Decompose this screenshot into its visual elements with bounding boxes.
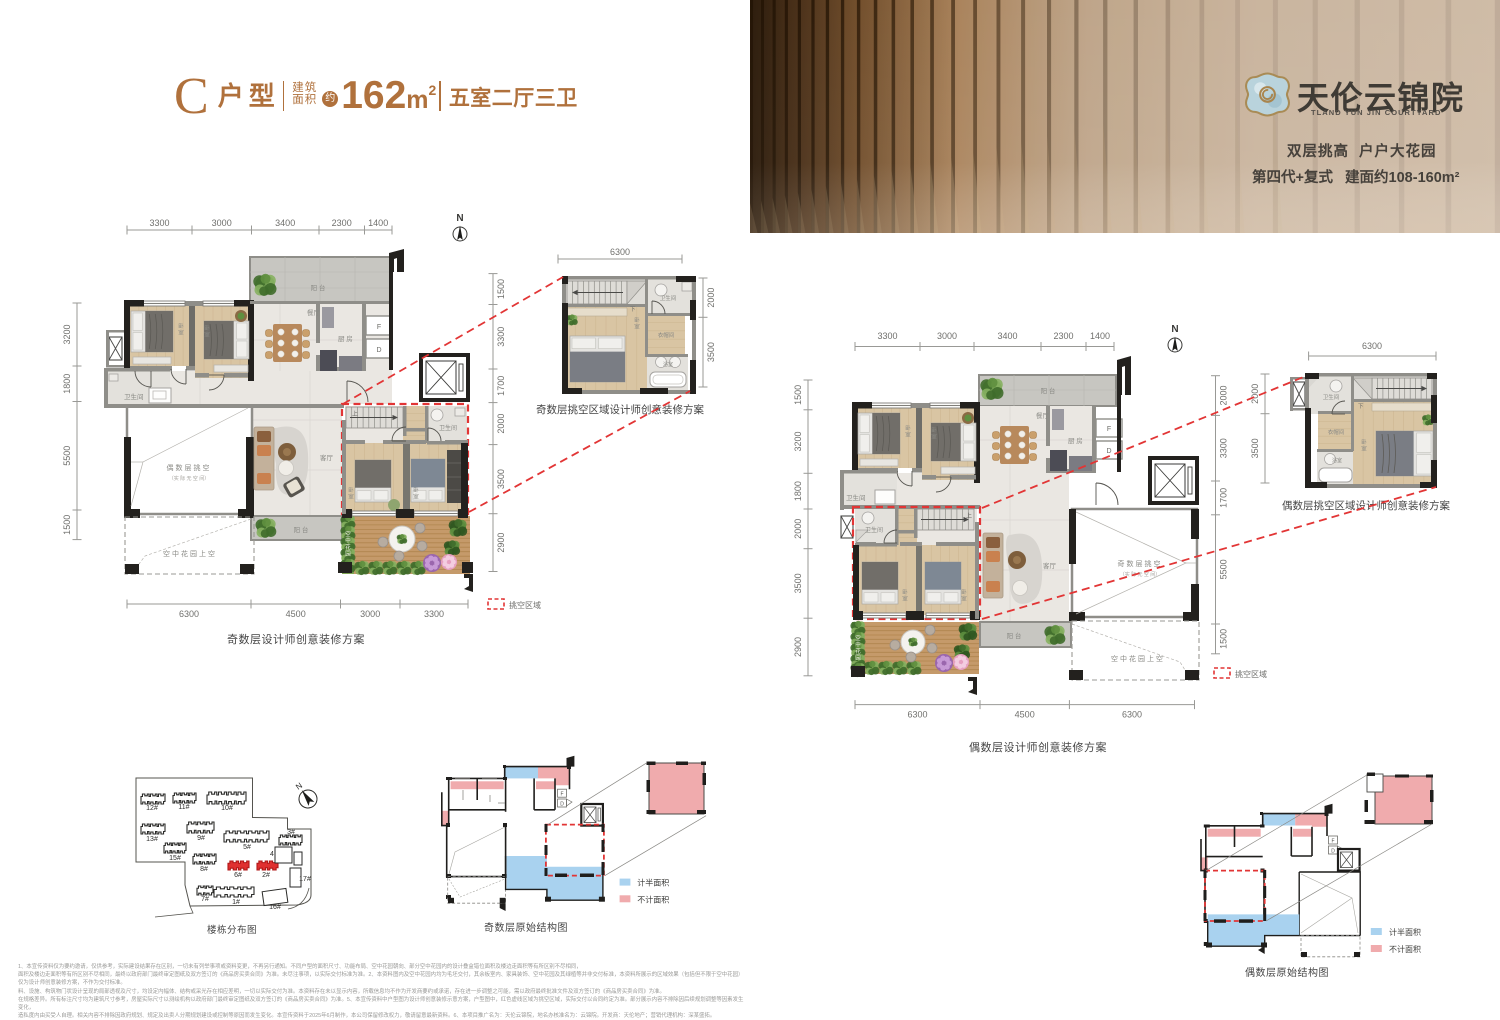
svg-text:卧室: 卧室 bbox=[902, 588, 908, 603]
svg-text:4500: 4500 bbox=[1015, 710, 1035, 720]
svg-text:10#: 10# bbox=[221, 805, 233, 812]
svg-text:浴室: 浴室 bbox=[663, 361, 673, 368]
svg-text:浴室: 浴室 bbox=[1332, 457, 1342, 464]
svg-text:（实 际 无 空 间）: （实 际 无 空 间） bbox=[169, 475, 210, 482]
svg-text:阳 台: 阳 台 bbox=[294, 525, 309, 534]
svg-text:2000: 2000 bbox=[793, 519, 803, 539]
svg-text:客厅: 客厅 bbox=[1043, 561, 1057, 570]
svg-text:8#: 8# bbox=[200, 866, 208, 873]
svg-text:餐厅: 餐厅 bbox=[1036, 411, 1050, 420]
svg-text:1800: 1800 bbox=[62, 374, 72, 394]
svg-text:2000: 2000 bbox=[1219, 385, 1229, 405]
svg-text:不计面积: 不计面积 bbox=[1389, 944, 1421, 954]
svg-text:3200: 3200 bbox=[62, 324, 72, 344]
svg-text:空中花园: 空中花园 bbox=[855, 634, 861, 662]
svg-text:2000: 2000 bbox=[706, 288, 716, 308]
svg-text:1500: 1500 bbox=[496, 279, 506, 299]
svg-text:1400: 1400 bbox=[1090, 331, 1110, 341]
svg-text:3#: 3# bbox=[287, 829, 295, 836]
svg-text:17#: 17# bbox=[299, 876, 311, 883]
svg-text:客厅: 客厅 bbox=[320, 453, 334, 462]
svg-text:1800: 1800 bbox=[793, 481, 803, 501]
svg-text:2300: 2300 bbox=[332, 218, 352, 228]
svg-text:1700: 1700 bbox=[496, 376, 506, 396]
svg-text:下: 下 bbox=[630, 306, 636, 313]
svg-text:3500: 3500 bbox=[706, 342, 716, 362]
svg-text:D: D bbox=[1106, 448, 1111, 455]
svg-text:卫生间: 卫生间 bbox=[865, 526, 883, 534]
svg-text:6#: 6# bbox=[234, 872, 242, 879]
svg-text:3400: 3400 bbox=[997, 331, 1017, 341]
svg-text:F: F bbox=[560, 792, 563, 798]
svg-text:3200: 3200 bbox=[793, 431, 803, 451]
svg-text:卧室: 卧室 bbox=[1361, 438, 1367, 453]
svg-text:3000: 3000 bbox=[937, 331, 957, 341]
svg-text:不计面积: 不计面积 bbox=[637, 894, 669, 904]
svg-text:1500: 1500 bbox=[793, 385, 803, 405]
svg-text:楼栋分布图: 楼栋分布图 bbox=[207, 924, 257, 936]
svg-text:5#: 5# bbox=[243, 844, 251, 851]
svg-text:4500: 4500 bbox=[286, 609, 306, 619]
svg-text:卧室: 卧室 bbox=[931, 426, 937, 441]
svg-text:卧室: 卧室 bbox=[204, 324, 210, 339]
svg-text:卧室: 卧室 bbox=[348, 486, 354, 501]
svg-text:卫生间: 卫生间 bbox=[660, 294, 677, 302]
svg-text:6300: 6300 bbox=[1122, 710, 1142, 720]
svg-text:9#: 9# bbox=[197, 835, 205, 842]
svg-text:上: 上 bbox=[966, 512, 972, 520]
svg-text:D: D bbox=[1331, 848, 1335, 854]
svg-text:卧室: 卧室 bbox=[961, 588, 967, 603]
svg-text:餐厅: 餐厅 bbox=[307, 308, 321, 317]
svg-text:空中花园上空: 空中花园上空 bbox=[163, 549, 217, 558]
svg-text:奇数层原始结构图: 奇数层原始结构图 bbox=[484, 921, 568, 934]
svg-text:挑空区域: 挑空区域 bbox=[509, 600, 541, 610]
svg-text:6300: 6300 bbox=[179, 609, 199, 619]
svg-text:阳 台: 阳 台 bbox=[311, 283, 326, 292]
svg-text:3400: 3400 bbox=[275, 218, 295, 228]
svg-text:N: N bbox=[294, 781, 304, 792]
svg-text:偶数层挑空区域设计师创意装修方案: 偶数层挑空区域设计师创意装修方案 bbox=[1282, 499, 1450, 512]
svg-text:1400: 1400 bbox=[368, 218, 388, 228]
svg-text:1#: 1# bbox=[232, 899, 240, 906]
svg-text:偶数层原始结构图: 偶数层原始结构图 bbox=[1245, 966, 1329, 979]
svg-text:卧室: 卧室 bbox=[178, 322, 184, 337]
svg-text:3300: 3300 bbox=[496, 327, 506, 347]
svg-text:阳 台: 阳 台 bbox=[1007, 631, 1022, 640]
svg-text:空中花园上空: 空中花园上空 bbox=[1111, 654, 1165, 663]
svg-text:3500: 3500 bbox=[1250, 438, 1260, 458]
svg-text:奇数层挑空区域设计师创意装修方案: 奇数层挑空区域设计师创意装修方案 bbox=[536, 403, 704, 416]
svg-text:奇数层设计师创意装修方案: 奇数层设计师创意装修方案 bbox=[227, 632, 365, 646]
svg-text:3300: 3300 bbox=[877, 331, 897, 341]
svg-text:2#: 2# bbox=[262, 872, 270, 879]
svg-text:卧室: 卧室 bbox=[413, 486, 419, 501]
svg-text:6300: 6300 bbox=[610, 247, 630, 257]
svg-text:11#: 11# bbox=[178, 804, 189, 811]
svg-text:2900: 2900 bbox=[793, 637, 803, 657]
svg-text:13#: 13# bbox=[146, 836, 158, 843]
svg-text:5500: 5500 bbox=[62, 446, 72, 466]
svg-text:D: D bbox=[376, 347, 381, 354]
svg-text:3000: 3000 bbox=[360, 609, 380, 619]
svg-text:卧室: 卧室 bbox=[634, 316, 640, 331]
svg-text:3300: 3300 bbox=[149, 218, 169, 228]
svg-text:3300: 3300 bbox=[1219, 438, 1229, 458]
svg-text:F: F bbox=[377, 324, 381, 331]
svg-text:12#: 12# bbox=[146, 805, 158, 812]
svg-text:1700: 1700 bbox=[1219, 488, 1229, 508]
svg-text:卫生间: 卫生间 bbox=[439, 424, 457, 432]
svg-text:厨 房: 厨 房 bbox=[1068, 436, 1083, 445]
svg-text:偶数层设计师创意装修方案: 偶数层设计师创意装修方案 bbox=[969, 740, 1107, 754]
svg-text:计半面积: 计半面积 bbox=[637, 878, 669, 888]
svg-text:N: N bbox=[456, 213, 463, 224]
svg-text:厨 房: 厨 房 bbox=[338, 334, 353, 343]
svg-text:3500: 3500 bbox=[793, 573, 803, 593]
svg-text:F: F bbox=[1331, 838, 1334, 844]
svg-text:7#: 7# bbox=[201, 896, 209, 903]
svg-text:1500: 1500 bbox=[62, 515, 72, 535]
svg-text:2000: 2000 bbox=[1250, 384, 1260, 404]
svg-text:卫生间: 卫生间 bbox=[124, 392, 144, 401]
svg-text:3000: 3000 bbox=[212, 218, 232, 228]
svg-text:6300: 6300 bbox=[907, 710, 927, 720]
svg-text:3500: 3500 bbox=[496, 469, 506, 489]
svg-text:F: F bbox=[1107, 426, 1111, 433]
svg-text:衣帽间: 衣帽间 bbox=[658, 331, 675, 339]
svg-text:计半面积: 计半面积 bbox=[1389, 927, 1421, 937]
svg-text:卧室: 卧室 bbox=[905, 424, 911, 439]
svg-text:6300: 6300 bbox=[1362, 341, 1382, 351]
svg-text:偶数层挑空: 偶数层挑空 bbox=[167, 463, 212, 472]
svg-text:1500: 1500 bbox=[1219, 629, 1229, 649]
svg-text:5500: 5500 bbox=[1219, 559, 1229, 579]
svg-text:2300: 2300 bbox=[1053, 331, 1073, 341]
svg-text:2900: 2900 bbox=[496, 533, 506, 553]
svg-text:空中花园: 空中花园 bbox=[345, 530, 351, 558]
svg-text:D: D bbox=[560, 801, 564, 807]
svg-text:N: N bbox=[1171, 324, 1178, 335]
svg-text:阳 台: 阳 台 bbox=[1041, 386, 1056, 395]
svg-text:3300: 3300 bbox=[424, 609, 444, 619]
svg-text:衣帽间: 衣帽间 bbox=[1328, 428, 1345, 436]
svg-text:奇数层挑空: 奇数层挑空 bbox=[1118, 559, 1163, 568]
svg-text:卫生间: 卫生间 bbox=[1323, 393, 1340, 401]
svg-text:4: 4 bbox=[270, 851, 274, 858]
svg-text:2000: 2000 bbox=[496, 414, 506, 434]
svg-text:挑空区域: 挑空区域 bbox=[1235, 669, 1267, 679]
svg-text:16#: 16# bbox=[269, 904, 281, 911]
svg-text:卫生间: 卫生间 bbox=[846, 493, 866, 502]
svg-text:15#: 15# bbox=[169, 855, 181, 862]
svg-text:下: 下 bbox=[1358, 403, 1364, 410]
svg-text:上: 上 bbox=[352, 410, 358, 418]
